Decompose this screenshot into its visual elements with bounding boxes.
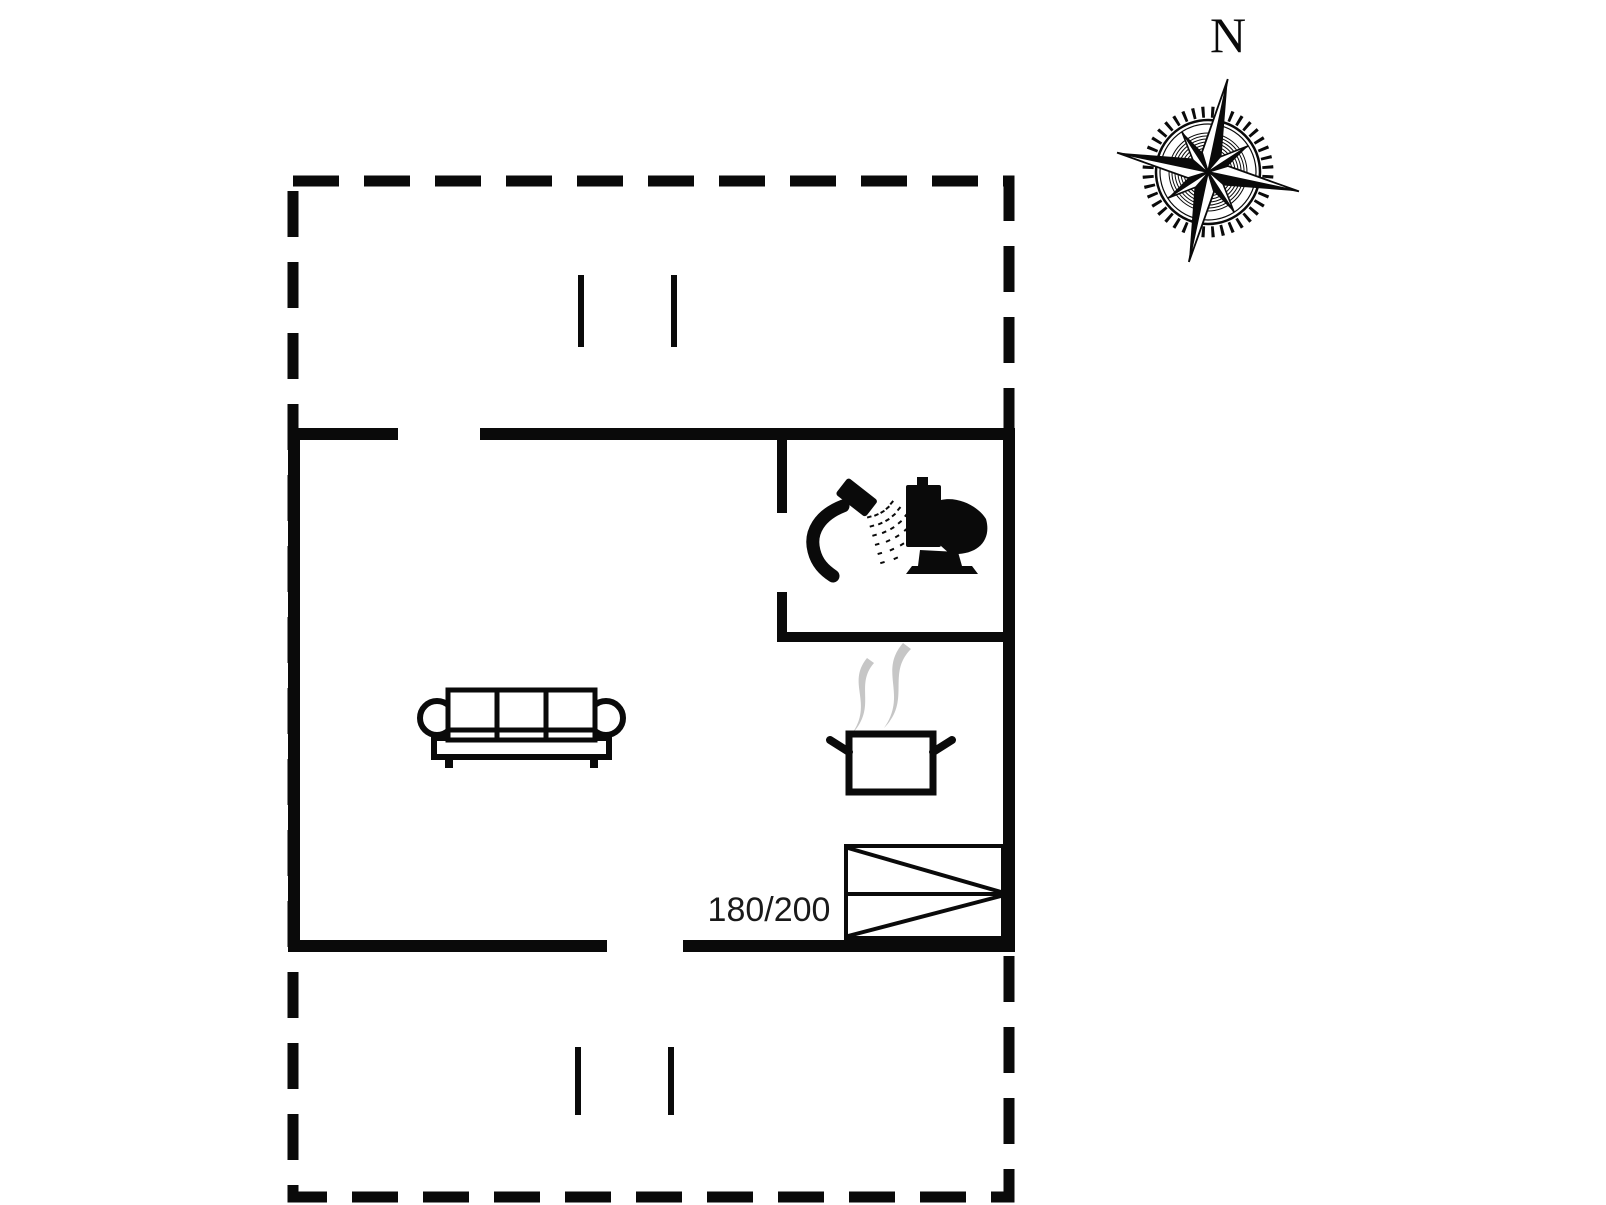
compass-rose-icon	[1098, 60, 1319, 282]
floor-plan-page: 180/200 N	[0, 0, 1606, 1205]
toilet-bowl	[941, 499, 987, 554]
steam-wisp-right	[884, 643, 911, 728]
toilet-flush-button	[917, 477, 928, 486]
bed-fold-top	[848, 848, 1001, 892]
wall-bottom-right-segment	[683, 940, 1015, 952]
pot-body	[849, 734, 933, 792]
shower-hose	[813, 506, 843, 576]
toilet-tank	[906, 485, 941, 547]
compass: N	[1098, 7, 1319, 281]
terrace-post-mark-top-right	[671, 275, 677, 347]
steam-wisp-left	[852, 658, 874, 734]
bathroom-wall-vertical-upper	[777, 440, 787, 513]
sofa-back-cushions	[448, 690, 595, 730]
toilet-icon	[906, 477, 987, 574]
bed-size-label: 180/200	[708, 891, 831, 929]
sofa-seat-edge	[448, 730, 595, 740]
toilet-pedestal	[918, 550, 962, 566]
terrace-post-mark-bottom-right	[668, 1047, 674, 1115]
wall-left	[288, 428, 300, 952]
terrace-post-mark-top-left	[578, 275, 584, 347]
kitchen-area	[830, 643, 952, 792]
wall-top-left-segment	[288, 428, 398, 440]
sofa-icon	[420, 690, 623, 768]
compass-north-label: N	[1210, 7, 1246, 63]
compass-cardinal-points	[1098, 60, 1319, 282]
bathroom-wall-horizontal	[777, 632, 1003, 642]
toilet-base	[906, 566, 978, 574]
cooking-pot-icon	[830, 734, 952, 792]
wall-top-right-segment	[480, 428, 1015, 440]
shower-icon	[813, 477, 917, 576]
wall-bottom-left-segment	[288, 940, 607, 952]
sofa-foot-right	[590, 757, 598, 768]
bed-fold-bottom	[848, 896, 1001, 936]
sofa-foot-left	[445, 757, 453, 768]
property-boundary-dashed	[293, 181, 1009, 1197]
floor-plan: 180/200 N	[0, 0, 1606, 1205]
property-boundary	[293, 181, 1009, 1197]
steam-icon	[852, 643, 911, 734]
terrace-post-mark-bottom-left	[575, 1047, 581, 1115]
house-walls	[288, 428, 1015, 952]
double-bed-icon: 180/200	[708, 846, 1003, 938]
